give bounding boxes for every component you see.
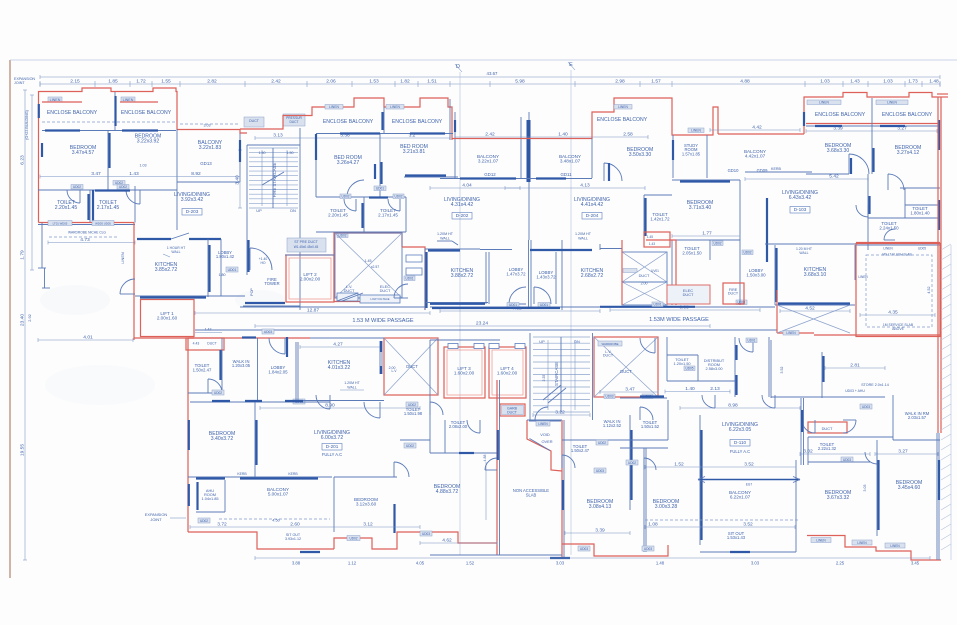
svg-text:3.45: 3.45 xyxy=(911,561,920,566)
svg-text:4.50: 4.50 xyxy=(272,518,280,523)
svg-text:1.50x1.52: 1.50x1.52 xyxy=(641,424,660,429)
svg-text:GD13: GD13 xyxy=(200,161,212,166)
svg-text:DUCT: DUCT xyxy=(380,288,391,293)
svg-text:MS LT FLUSH SLAB: MS LT FLUSH SLAB xyxy=(882,253,911,257)
svg-text:3.27x4.12: 3.27x4.12 xyxy=(897,150,920,156)
svg-text:1.50: 1.50 xyxy=(286,151,293,155)
svg-text:2.13: 2.13 xyxy=(710,386,720,392)
svg-text:3.48x1.07: 3.48x1.07 xyxy=(560,159,581,164)
svg-text:UD02: UD02 xyxy=(349,536,357,540)
svg-text:1.47x3.72: 1.47x3.72 xyxy=(506,271,526,276)
svg-text:D-110: D-110 xyxy=(734,440,747,445)
svg-text:1.53x1.43: 1.53x1.43 xyxy=(727,535,746,540)
svg-text:3.02: 3.02 xyxy=(803,449,813,455)
svg-text:3.22x1.07: 3.22x1.07 xyxy=(478,159,499,164)
svg-text:1.20M HT: 1.20M HT xyxy=(575,232,592,236)
svg-text:4.88: 4.88 xyxy=(483,455,487,462)
svg-text:3.52: 3.52 xyxy=(744,462,754,468)
svg-text:1.45: 1.45 xyxy=(647,235,653,239)
svg-text:UD03: UD03 xyxy=(843,458,851,462)
svg-text:3.47: 3.47 xyxy=(91,171,101,177)
svg-text:FULLY A.C: FULLY A.C xyxy=(322,452,342,457)
svg-text:4.27: 4.27 xyxy=(333,342,343,348)
svg-text:2.06: 2.06 xyxy=(326,79,336,85)
svg-text:LINEN: LINEN xyxy=(538,422,548,426)
svg-text:LOW VOLTAGE: LOW VOLTAGE xyxy=(370,297,389,301)
svg-text:UD02: UD02 xyxy=(406,444,414,448)
svg-text:ENCLOSE BALCONY: ENCLOSE BALCONY xyxy=(47,110,98,116)
svg-text:2.58: 2.58 xyxy=(623,132,633,138)
svg-text:UD02: UD02 xyxy=(628,461,636,465)
svg-text:3.27: 3.27 xyxy=(897,126,907,132)
svg-text:1.50x2.47: 1.50x2.47 xyxy=(571,448,590,453)
svg-text:1.60x2.00: 1.60x2.00 xyxy=(497,371,518,376)
svg-text:3.68x3.10: 3.68x3.10 xyxy=(804,272,827,278)
svg-text:D-103: D-103 xyxy=(794,207,807,212)
svg-text:3.21x3.81: 3.21x3.81 xyxy=(403,149,426,155)
svg-text:2.08x2.00: 2.08x2.00 xyxy=(449,424,468,429)
svg-text:4.42: 4.42 xyxy=(752,125,762,131)
svg-text:UD02: UD02 xyxy=(713,241,721,245)
svg-text:3.13: 3.13 xyxy=(273,133,283,139)
svg-text:12.87: 12.87 xyxy=(307,308,319,314)
svg-text:GD11: GD11 xyxy=(560,172,572,177)
svg-text:3.88: 3.88 xyxy=(292,561,301,566)
svg-text:UD03: UD03 xyxy=(580,547,588,551)
svg-text:LINEN: LINEN xyxy=(883,247,893,251)
svg-text:DUCT: DUCT xyxy=(406,364,418,369)
svg-text:3.26x4.27: 3.26x4.27 xyxy=(337,160,360,166)
svg-text:6.22x3.05: 6.22x3.05 xyxy=(729,427,752,433)
svg-text:1.04x1.85: 1.04x1.85 xyxy=(201,496,218,501)
svg-text:3.93x1.12: 3.93x1.12 xyxy=(285,537,301,541)
svg-text:E: E xyxy=(569,62,573,68)
svg-text:UD03: UD03 xyxy=(605,394,613,398)
svg-text:UD05: UD05 xyxy=(918,247,926,251)
svg-text:UD03: UD03 xyxy=(422,532,430,536)
svg-text:KERB: KERB xyxy=(237,472,247,476)
svg-text:1.51: 1.51 xyxy=(427,79,437,85)
svg-text:2.20x1.45: 2.20x1.45 xyxy=(55,205,78,211)
svg-text:ABOVE: ABOVE xyxy=(892,327,904,331)
svg-text:6.00x3.72: 6.00x3.72 xyxy=(321,435,344,441)
svg-text:JOINT: JOINT xyxy=(150,517,162,522)
svg-text:1.03: 1.03 xyxy=(883,79,893,85)
svg-text:3.08x4.13: 3.08x4.13 xyxy=(589,504,612,510)
svg-text:1.20M HT: 1.20M HT xyxy=(437,232,454,236)
svg-text:ENCLOSE BALCONY: ENCLOSE BALCONY xyxy=(882,112,933,118)
svg-text:1.52: 1.52 xyxy=(466,561,475,566)
svg-text:LINEN: LINEN xyxy=(887,100,897,104)
svg-text:DUCT: DUCT xyxy=(249,119,260,123)
svg-text:3.03: 3.03 xyxy=(556,561,565,566)
svg-text:6.23: 6.23 xyxy=(20,155,26,165)
svg-text:3.47x4.57: 3.47x4.57 xyxy=(72,150,95,156)
svg-text:6.22x1.07: 6.22x1.07 xyxy=(730,495,751,500)
svg-text:2.05x1.50: 2.05x1.50 xyxy=(682,250,702,255)
svg-text:LINEN: LINEN xyxy=(123,98,134,102)
svg-text:UD02: UD02 xyxy=(73,185,81,189)
svg-text:1.12x2.52: 1.12x2.52 xyxy=(603,423,622,428)
svg-text:1.43x3.72: 1.43x3.72 xyxy=(536,274,556,279)
svg-text:UD02: UD02 xyxy=(598,441,606,445)
svg-text:2.00x1.60: 2.00x1.60 xyxy=(157,316,178,321)
svg-text:1.53: 1.53 xyxy=(369,79,379,85)
svg-text:3.67x3.32: 3.67x3.32 xyxy=(827,495,850,501)
svg-text:3.72: 3.72 xyxy=(217,522,227,528)
svg-text:5.98: 5.98 xyxy=(515,79,525,85)
svg-text:DN: DN xyxy=(290,208,296,213)
svg-text:UD03: UD03 xyxy=(644,547,652,551)
svg-text:19.55: 19.55 xyxy=(20,444,26,456)
svg-text:1.57: 1.57 xyxy=(651,79,661,85)
svg-text:2.68x2.72: 2.68x2.72 xyxy=(581,273,604,279)
svg-text:UD03: UD03 xyxy=(596,469,604,473)
svg-text:UD02: UD02 xyxy=(119,185,127,189)
svg-text:DUCT: DUCT xyxy=(289,120,298,124)
svg-text:UD01: UD01 xyxy=(747,338,755,342)
svg-text:DUCT: DUCT xyxy=(728,292,739,296)
svg-text:8.98: 8.98 xyxy=(728,403,738,409)
svg-text:UD02: UD02 xyxy=(338,233,346,237)
svg-text:DUCT: DUCT xyxy=(207,342,216,346)
svg-text:VOID: VOID xyxy=(540,432,550,437)
svg-text:ENCLOSE BALCONY: ENCLOSE BALCONY xyxy=(121,110,172,116)
svg-text:KERB: KERB xyxy=(771,167,782,171)
svg-text:1.79: 1.79 xyxy=(20,250,26,260)
svg-text:1.12: 1.12 xyxy=(348,561,357,566)
svg-text:1.73: 1.73 xyxy=(908,79,918,85)
svg-text:1.48: 1.48 xyxy=(656,561,665,566)
svg-text:4.73: 4.73 xyxy=(80,237,90,243)
svg-text:WALL: WALL xyxy=(440,237,450,241)
svg-text:FULLY A.C: FULLY A.C xyxy=(730,449,750,454)
svg-text:1.77: 1.77 xyxy=(702,231,712,237)
svg-text:1.53M WIDE PASSAGE: 1.53M WIDE PASSAGE xyxy=(649,317,709,323)
svg-text:LINEN: LINEN xyxy=(50,98,61,102)
svg-text:3.40: 3.40 xyxy=(235,175,241,185)
svg-text:5.42: 5.42 xyxy=(829,174,839,180)
svg-text:1.48: 1.48 xyxy=(929,79,939,85)
svg-text:3.52: 3.52 xyxy=(743,522,753,528)
svg-text:LINEN: LINEN xyxy=(691,128,701,132)
svg-text:DUCT: DUCT xyxy=(620,369,632,374)
svg-text:LINEN: LINEN xyxy=(329,105,339,109)
svg-text:UD02: UD02 xyxy=(394,194,402,198)
svg-text:3.39: 3.39 xyxy=(595,528,605,534)
svg-text:1.50x2.47: 1.50x2.47 xyxy=(193,367,212,372)
svg-text:3.45x4.60: 3.45x4.60 xyxy=(898,485,921,491)
svg-text:3.52: 3.52 xyxy=(780,367,784,374)
svg-text:OVER: OVER xyxy=(541,439,552,444)
svg-text:WALL: WALL xyxy=(171,250,180,254)
svg-text:D-203: D-203 xyxy=(186,209,199,214)
svg-text:2.42: 2.42 xyxy=(485,132,495,138)
svg-text:2.20x1.45: 2.20x1.45 xyxy=(328,213,348,218)
svg-text:UD01: UD01 xyxy=(653,302,661,306)
svg-text:7.52: 7.52 xyxy=(512,306,522,312)
svg-text:1.53 M WIDE PASSAGE: 1.53 M WIDE PASSAGE xyxy=(352,318,414,324)
svg-text:DUCT: DUCT xyxy=(603,354,614,358)
svg-text:ENCLOSE BALCONY: ENCLOSE BALCONY xyxy=(815,112,866,118)
svg-text:DUCT: DUCT xyxy=(507,411,518,415)
svg-text:HO: HO xyxy=(260,261,265,265)
svg-text:UD01: UD01 xyxy=(228,268,237,272)
svg-text:3.2: 3.2 xyxy=(409,133,416,139)
svg-text:2.35: 2.35 xyxy=(542,375,546,382)
svg-text:UD01: UD01 xyxy=(376,186,384,190)
svg-text:2.42: 2.42 xyxy=(271,79,281,85)
svg-text:4.62: 4.62 xyxy=(442,538,452,544)
svg-text:1.45: 1.45 xyxy=(364,259,371,263)
svg-text:3.40x3.72: 3.40x3.72 xyxy=(211,436,234,442)
svg-text:2.17x1.45: 2.17x1.45 xyxy=(378,213,398,218)
svg-text:2.98: 2.98 xyxy=(615,79,625,85)
svg-text:1.80x1.42: 1.80x1.42 xyxy=(216,254,235,259)
svg-text:1.72: 1.72 xyxy=(136,79,146,85)
svg-text:LINEN: LINEN xyxy=(120,252,125,264)
svg-text:43.67: 43.67 xyxy=(487,71,499,76)
svg-text:GD12: GD12 xyxy=(484,172,496,177)
svg-text:4.88: 4.88 xyxy=(740,79,750,85)
svg-text:2.81: 2.81 xyxy=(850,363,860,369)
svg-text:2.58x3.00: 2.58x3.00 xyxy=(705,366,723,371)
svg-text:4.41x4.42: 4.41x4.42 xyxy=(581,202,604,208)
svg-text:1.43: 1.43 xyxy=(850,79,860,85)
svg-text:TOWER: TOWER xyxy=(264,281,279,286)
svg-text:2.17x1.45: 2.17x1.45 xyxy=(97,205,120,211)
svg-text:2.82: 2.82 xyxy=(207,79,217,85)
svg-text:UD05: UD05 xyxy=(685,366,693,370)
svg-text:SLAB: SLAB xyxy=(526,492,537,497)
svg-text:2.25: 2.25 xyxy=(836,561,845,566)
svg-text:UD01: UD01 xyxy=(405,276,413,280)
svg-text:2.92: 2.92 xyxy=(27,314,32,322)
svg-text:EG7: EG7 xyxy=(746,483,753,487)
svg-text:1.20x3.05: 1.20x3.05 xyxy=(232,363,251,368)
svg-text:LINEN: LINEN xyxy=(857,541,867,545)
svg-text:1.42: 1.42 xyxy=(205,328,212,332)
svg-text:1.43: 1.43 xyxy=(649,242,655,246)
svg-text:LT01 WD05: LT01 WD05 xyxy=(53,221,68,225)
svg-text:D: D xyxy=(456,64,460,70)
svg-text:DUCT: DUCT xyxy=(683,292,694,297)
svg-text:3.39: 3.39 xyxy=(833,126,843,132)
svg-text:2.22x1.32: 2.22x1.32 xyxy=(818,446,837,451)
svg-text:23.24: 23.24 xyxy=(476,321,488,327)
svg-text:4.42x1.07: 4.42x1.07 xyxy=(745,154,766,159)
svg-text:POP: POP xyxy=(250,288,254,296)
svg-text:4.05: 4.05 xyxy=(416,561,425,566)
svg-text:UD02: UD02 xyxy=(200,519,208,523)
svg-text:W1.45x0.45x0.45: W1.45x0.45x0.45 xyxy=(294,245,319,249)
svg-text:GD10: GD10 xyxy=(728,168,740,173)
svg-text:WALL: WALL xyxy=(578,237,588,241)
svg-text:4.01: 4.01 xyxy=(83,335,93,341)
svg-text:LINEN: LINEN xyxy=(816,538,826,542)
svg-text:2.00: 2.00 xyxy=(641,282,648,286)
svg-text:ST PRE DUCT: ST PRE DUCT xyxy=(294,240,318,244)
svg-text:LINEN: LINEN xyxy=(618,105,628,109)
svg-text:1.50x1.98: 1.50x1.98 xyxy=(404,411,423,416)
svg-text:3.12: 3.12 xyxy=(363,522,373,528)
svg-text:3.00x3.28: 3.00x3.28 xyxy=(655,504,678,510)
svg-text:WARDROBE NICHE CLG: WARDROBE NICHE CLG xyxy=(68,231,106,235)
svg-text:4.88x3.72: 4.88x3.72 xyxy=(436,489,459,495)
svg-text:3.27: 3.27 xyxy=(898,449,908,455)
svg-text:23.40: 23.40 xyxy=(20,314,26,326)
svg-text:3.12x3.60: 3.12x3.60 xyxy=(356,502,377,507)
svg-text:2.03x1.57: 2.03x1.57 xyxy=(908,415,927,420)
svg-text:4.04: 4.04 xyxy=(462,183,472,189)
svg-text:1.84x2.05: 1.84x2.05 xyxy=(268,369,288,374)
svg-text:(G+23 BUILDING): (G+23 BUILDING) xyxy=(25,110,29,140)
svg-text:8.92: 8.92 xyxy=(191,171,201,177)
svg-text:1.55: 1.55 xyxy=(161,79,171,85)
svg-text:2.60: 2.60 xyxy=(290,522,300,528)
svg-text:WALL: WALL xyxy=(799,251,808,255)
svg-text:1.60x2.00: 1.60x2.00 xyxy=(454,371,475,376)
svg-text:1.85: 1.85 xyxy=(108,79,118,85)
svg-text:1.80: 1.80 xyxy=(218,273,225,277)
svg-text:KERB: KERB xyxy=(288,472,298,476)
svg-text:2.00: 2.00 xyxy=(389,366,396,370)
svg-text:1.40: 1.40 xyxy=(685,386,695,392)
svg-text:4.13: 4.13 xyxy=(580,183,590,189)
svg-text:1.80x1.40: 1.80x1.40 xyxy=(910,210,930,215)
svg-text:6.43x3.42: 6.43x3.42 xyxy=(789,195,812,201)
svg-text:3.36: 3.36 xyxy=(340,133,350,139)
svg-text:UV01: UV01 xyxy=(651,269,659,273)
svg-text:D-204: D-204 xyxy=(586,213,599,218)
svg-text:2.24x1.50: 2.24x1.50 xyxy=(879,225,899,230)
svg-text:x2.57: x2.57 xyxy=(371,265,379,269)
svg-text:DUCT: DUCT xyxy=(822,426,833,431)
svg-text:1.50: 1.50 xyxy=(258,151,265,155)
svg-text:UD03: UD03 xyxy=(862,405,870,409)
svg-text:WALL: WALL xyxy=(347,386,357,390)
svg-text:WD05 UD05: WD05 UD05 xyxy=(95,221,111,225)
svg-text:FIRE STAIRCASE: FIRE STAIRCASE xyxy=(272,162,277,197)
svg-text:3.85x2.72: 3.85x2.72 xyxy=(155,267,178,273)
svg-text:4.52: 4.52 xyxy=(805,306,815,312)
svg-text:LINEN: LINEN xyxy=(819,100,829,104)
svg-text:2.00x2.00: 2.00x2.00 xyxy=(300,277,321,282)
svg-text:4.31x4.42: 4.31x4.42 xyxy=(451,202,474,208)
svg-text:UP: UP xyxy=(539,339,545,344)
svg-text:1.52: 1.52 xyxy=(674,462,684,468)
svg-text:3.22x1.83: 3.22x1.83 xyxy=(199,145,222,151)
svg-text:3.47: 3.47 xyxy=(625,387,635,393)
svg-text:DUCT: DUCT xyxy=(344,288,355,293)
svg-text:1.82: 1.82 xyxy=(400,79,410,85)
svg-text:LINEN: LINEN xyxy=(390,105,400,109)
svg-text:3.71x3.40: 3.71x3.40 xyxy=(689,205,712,211)
svg-text:DUCT: DUCT xyxy=(639,273,650,278)
svg-text:UD03 + AHU: UD03 + AHU xyxy=(845,389,865,393)
svg-text:STAIRCASE: STAIRCASE xyxy=(554,362,559,386)
svg-text:3.50x3.30: 3.50x3.30 xyxy=(629,152,652,158)
svg-text:D-201: D-201 xyxy=(326,444,339,449)
svg-text:1.50x3.00: 1.50x3.00 xyxy=(746,272,766,277)
svg-text:6.08: 6.08 xyxy=(679,305,689,311)
svg-text:3.03: 3.03 xyxy=(863,485,867,492)
svg-text:1.03: 1.03 xyxy=(820,79,830,85)
svg-text:LINEN: LINEN xyxy=(786,331,796,335)
svg-text:JOINT: JOINT xyxy=(14,81,25,85)
svg-text:4.35: 4.35 xyxy=(888,310,898,316)
svg-text:3.03: 3.03 xyxy=(751,561,760,566)
svg-text:3.22: 3.22 xyxy=(555,410,565,416)
svg-text:1.03: 1.03 xyxy=(139,164,146,168)
svg-text:UP: UP xyxy=(256,208,262,213)
svg-text:3.68x3.30: 3.68x3.30 xyxy=(827,148,850,154)
svg-text:DN: DN xyxy=(574,339,580,344)
svg-text:1.40: 1.40 xyxy=(558,132,568,138)
svg-text:UD02: UD02 xyxy=(743,250,751,254)
svg-text:1.08: 1.08 xyxy=(648,522,658,528)
svg-text:4.43: 4.43 xyxy=(193,342,200,346)
svg-text:1.43: 1.43 xyxy=(129,171,139,177)
svg-text:1.20M HT: 1.20M HT xyxy=(344,381,360,385)
svg-text:1.20x1.50: 1.20x1.50 xyxy=(673,361,691,366)
svg-text:3.92x3.42: 3.92x3.42 xyxy=(181,197,204,203)
svg-text:4.52: 4.52 xyxy=(927,286,931,293)
svg-text:UD02: UD02 xyxy=(341,194,349,198)
svg-text:1.57x1.85: 1.57x1.85 xyxy=(682,151,701,156)
svg-text:LINEN: LINEN xyxy=(890,544,900,548)
svg-text:4.01x3.22: 4.01x3.22 xyxy=(328,365,351,371)
svg-text:5.00x1.07: 5.00x1.07 xyxy=(268,492,289,497)
svg-text:D-202: D-202 xyxy=(456,213,469,218)
svg-text:UD01: UD01 xyxy=(540,303,548,307)
svg-text:3.03: 3.03 xyxy=(203,124,210,128)
svg-text:UD02: UD02 xyxy=(214,391,222,395)
svg-text:ENCLOSE BALCONY: ENCLOSE BALCONY xyxy=(392,119,443,125)
svg-text:3.88x2.72: 3.88x2.72 xyxy=(451,273,474,279)
svg-text:ENCLOSE BALCONY: ENCLOSE BALCONY xyxy=(323,119,374,125)
svg-text:3.22x3.92: 3.22x3.92 xyxy=(137,139,160,145)
svg-text:2.15: 2.15 xyxy=(70,79,80,85)
svg-text:WARDROBE: WARDROBE xyxy=(601,342,618,346)
svg-text:STORE 2.0x1.14: STORE 2.0x1.14 xyxy=(861,383,889,387)
svg-text:1.42x1.72: 1.42x1.72 xyxy=(650,216,670,221)
svg-text:LINEN: LINEN xyxy=(858,275,868,279)
svg-text:UD03: UD03 xyxy=(264,330,272,334)
svg-text:ENCLOSE BALCONY: ENCLOSE BALCONY xyxy=(597,117,648,123)
